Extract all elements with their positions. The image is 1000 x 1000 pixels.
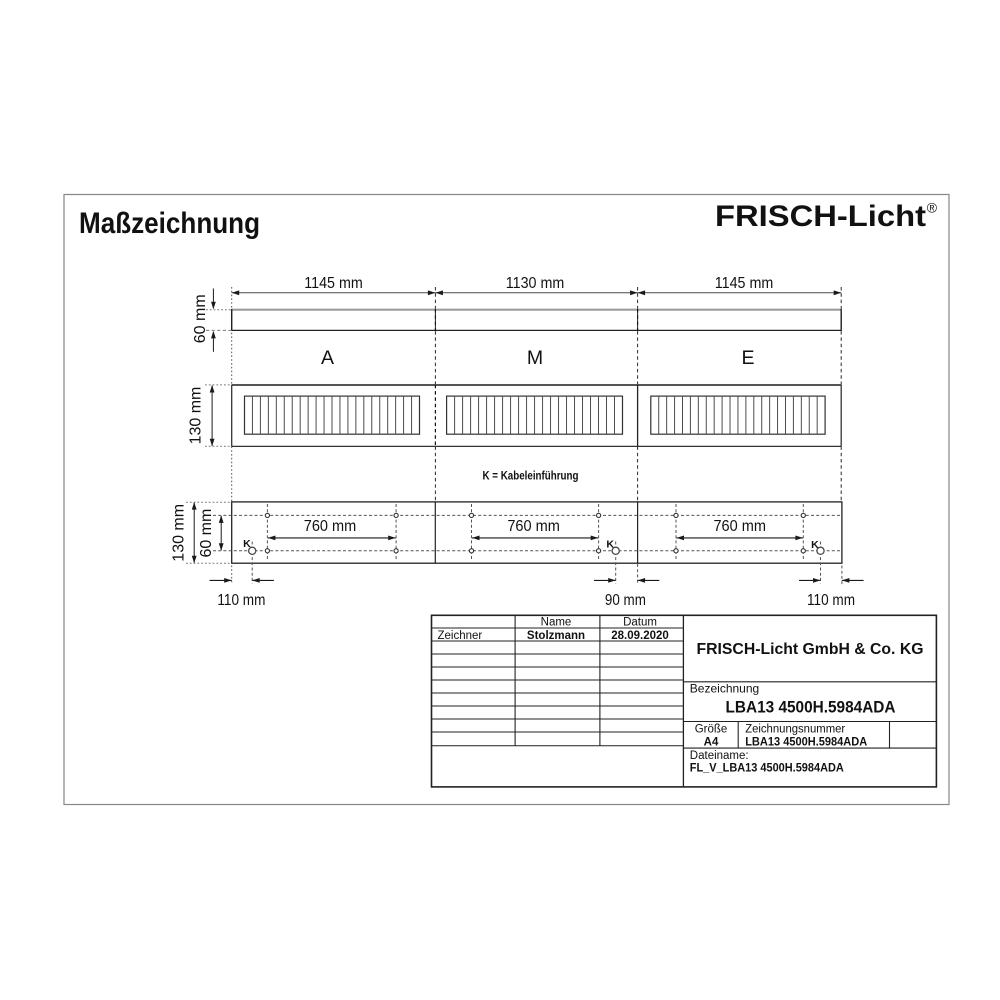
svg-text:110 mm: 110 mm bbox=[807, 592, 855, 609]
svg-text:90 mm: 90 mm bbox=[605, 592, 646, 609]
svg-text:130 mm: 130 mm bbox=[171, 504, 188, 562]
svg-text:E: E bbox=[741, 347, 754, 369]
svg-text:Bezeichnung: Bezeichnung bbox=[690, 682, 759, 696]
svg-text:Datum: Datum bbox=[623, 617, 657, 629]
svg-text:60 mm: 60 mm bbox=[198, 509, 215, 558]
svg-text:K = Kabeleinführung: K = Kabeleinführung bbox=[483, 471, 579, 483]
svg-text:A: A bbox=[321, 347, 334, 369]
svg-text:FRISCH-Licht: FRISCH-Licht bbox=[715, 200, 926, 233]
svg-text:Stolzmann: Stolzmann bbox=[527, 630, 585, 642]
svg-text:760 mm: 760 mm bbox=[507, 518, 560, 535]
svg-text:110 mm: 110 mm bbox=[217, 592, 265, 609]
svg-text:K: K bbox=[243, 538, 251, 550]
svg-text:1130 mm: 1130 mm bbox=[506, 275, 565, 292]
svg-text:LBA13 4500H.5984ADA: LBA13 4500H.5984ADA bbox=[745, 734, 867, 748]
svg-text:FL_V_LBA13 4500H.5984ADA: FL_V_LBA13 4500H.5984ADA bbox=[690, 761, 844, 775]
svg-text:®: ® bbox=[927, 200, 938, 216]
svg-text:Maßzeichnung: Maßzeichnung bbox=[79, 207, 260, 240]
svg-text:130 mm: 130 mm bbox=[188, 387, 205, 445]
svg-text:A4: A4 bbox=[704, 736, 719, 748]
svg-text:K: K bbox=[811, 539, 819, 551]
svg-text:FRISCH-Licht GmbH & Co. KG: FRISCH-Licht GmbH & Co. KG bbox=[697, 641, 924, 658]
svg-text:60 mm: 60 mm bbox=[192, 294, 209, 343]
svg-text:760 mm: 760 mm bbox=[713, 518, 766, 535]
svg-text:Größe: Größe bbox=[695, 724, 728, 736]
svg-text:Name: Name bbox=[541, 617, 572, 629]
svg-text:Zeichner: Zeichner bbox=[438, 630, 483, 642]
svg-text:K: K bbox=[606, 539, 614, 551]
svg-text:M: M bbox=[527, 347, 543, 369]
svg-text:28.09.2020: 28.09.2020 bbox=[611, 630, 669, 642]
svg-text:1145 mm: 1145 mm bbox=[304, 275, 363, 292]
svg-text:1145 mm: 1145 mm bbox=[715, 275, 774, 292]
svg-text:760 mm: 760 mm bbox=[304, 518, 357, 535]
svg-text:LBA13 4500H.5984ADA: LBA13 4500H.5984ADA bbox=[726, 699, 896, 717]
